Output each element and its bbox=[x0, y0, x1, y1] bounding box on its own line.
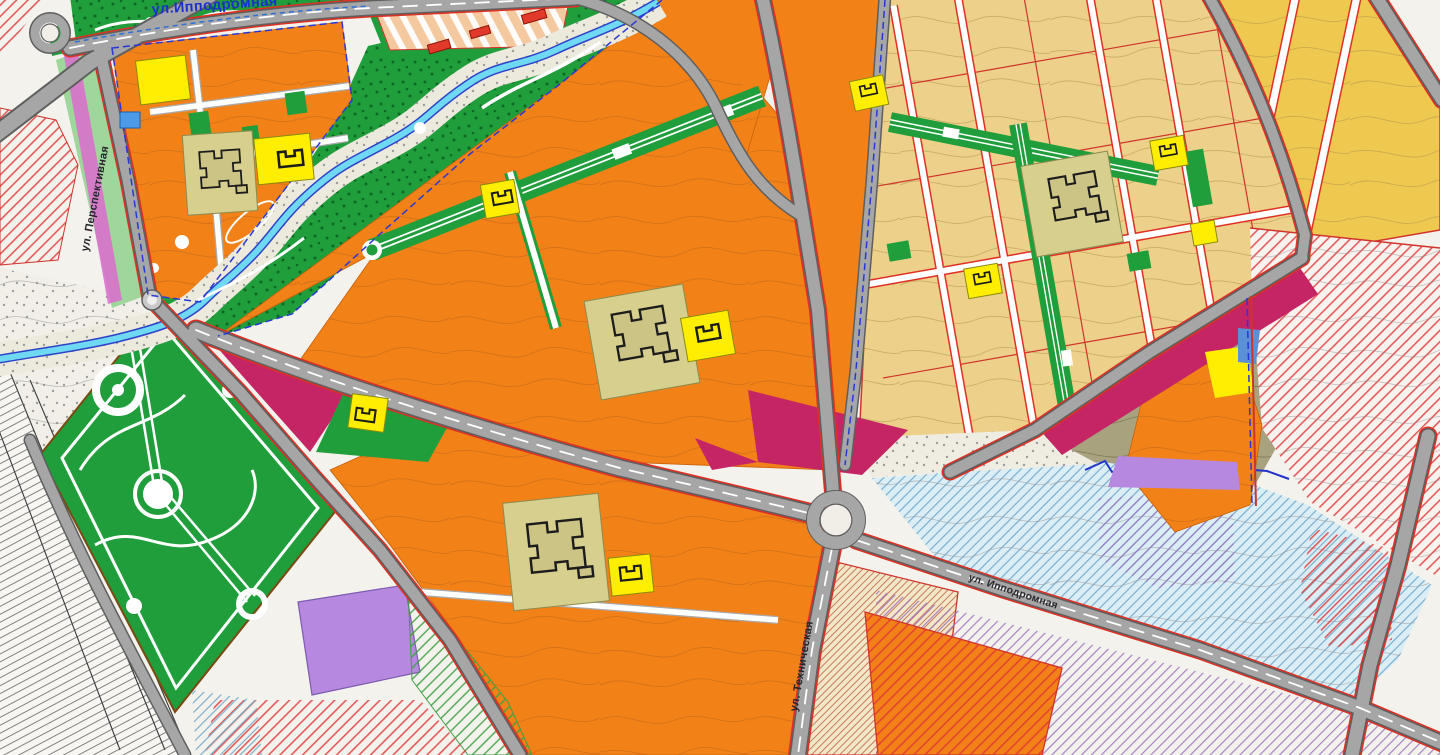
kindergarten-site bbox=[964, 263, 1003, 298]
blue-parcel bbox=[120, 112, 140, 128]
kindergarten-site bbox=[254, 133, 315, 185]
road-junction-node bbox=[142, 290, 162, 310]
yellow-parcel-nw bbox=[136, 55, 191, 105]
kindergarten-site bbox=[849, 75, 888, 111]
kindergarten-site bbox=[480, 179, 519, 218]
roundabout-northwest bbox=[30, 13, 70, 53]
lightblue-hatched-bottom bbox=[192, 690, 262, 755]
kindergarten-site bbox=[1190, 220, 1217, 246]
kindergarten-site bbox=[608, 554, 654, 596]
roundabout-central bbox=[807, 491, 865, 549]
kindergarten-site bbox=[681, 310, 736, 362]
kindergarten-site bbox=[1150, 135, 1189, 170]
master-plan-map[interactable]: ул.Ипподромная ул. Перспективная ул. Тех… bbox=[0, 0, 1440, 755]
map-canvas[interactable]: ул.Ипподромная ул. Перспективная ул. Тех… bbox=[0, 0, 1440, 755]
